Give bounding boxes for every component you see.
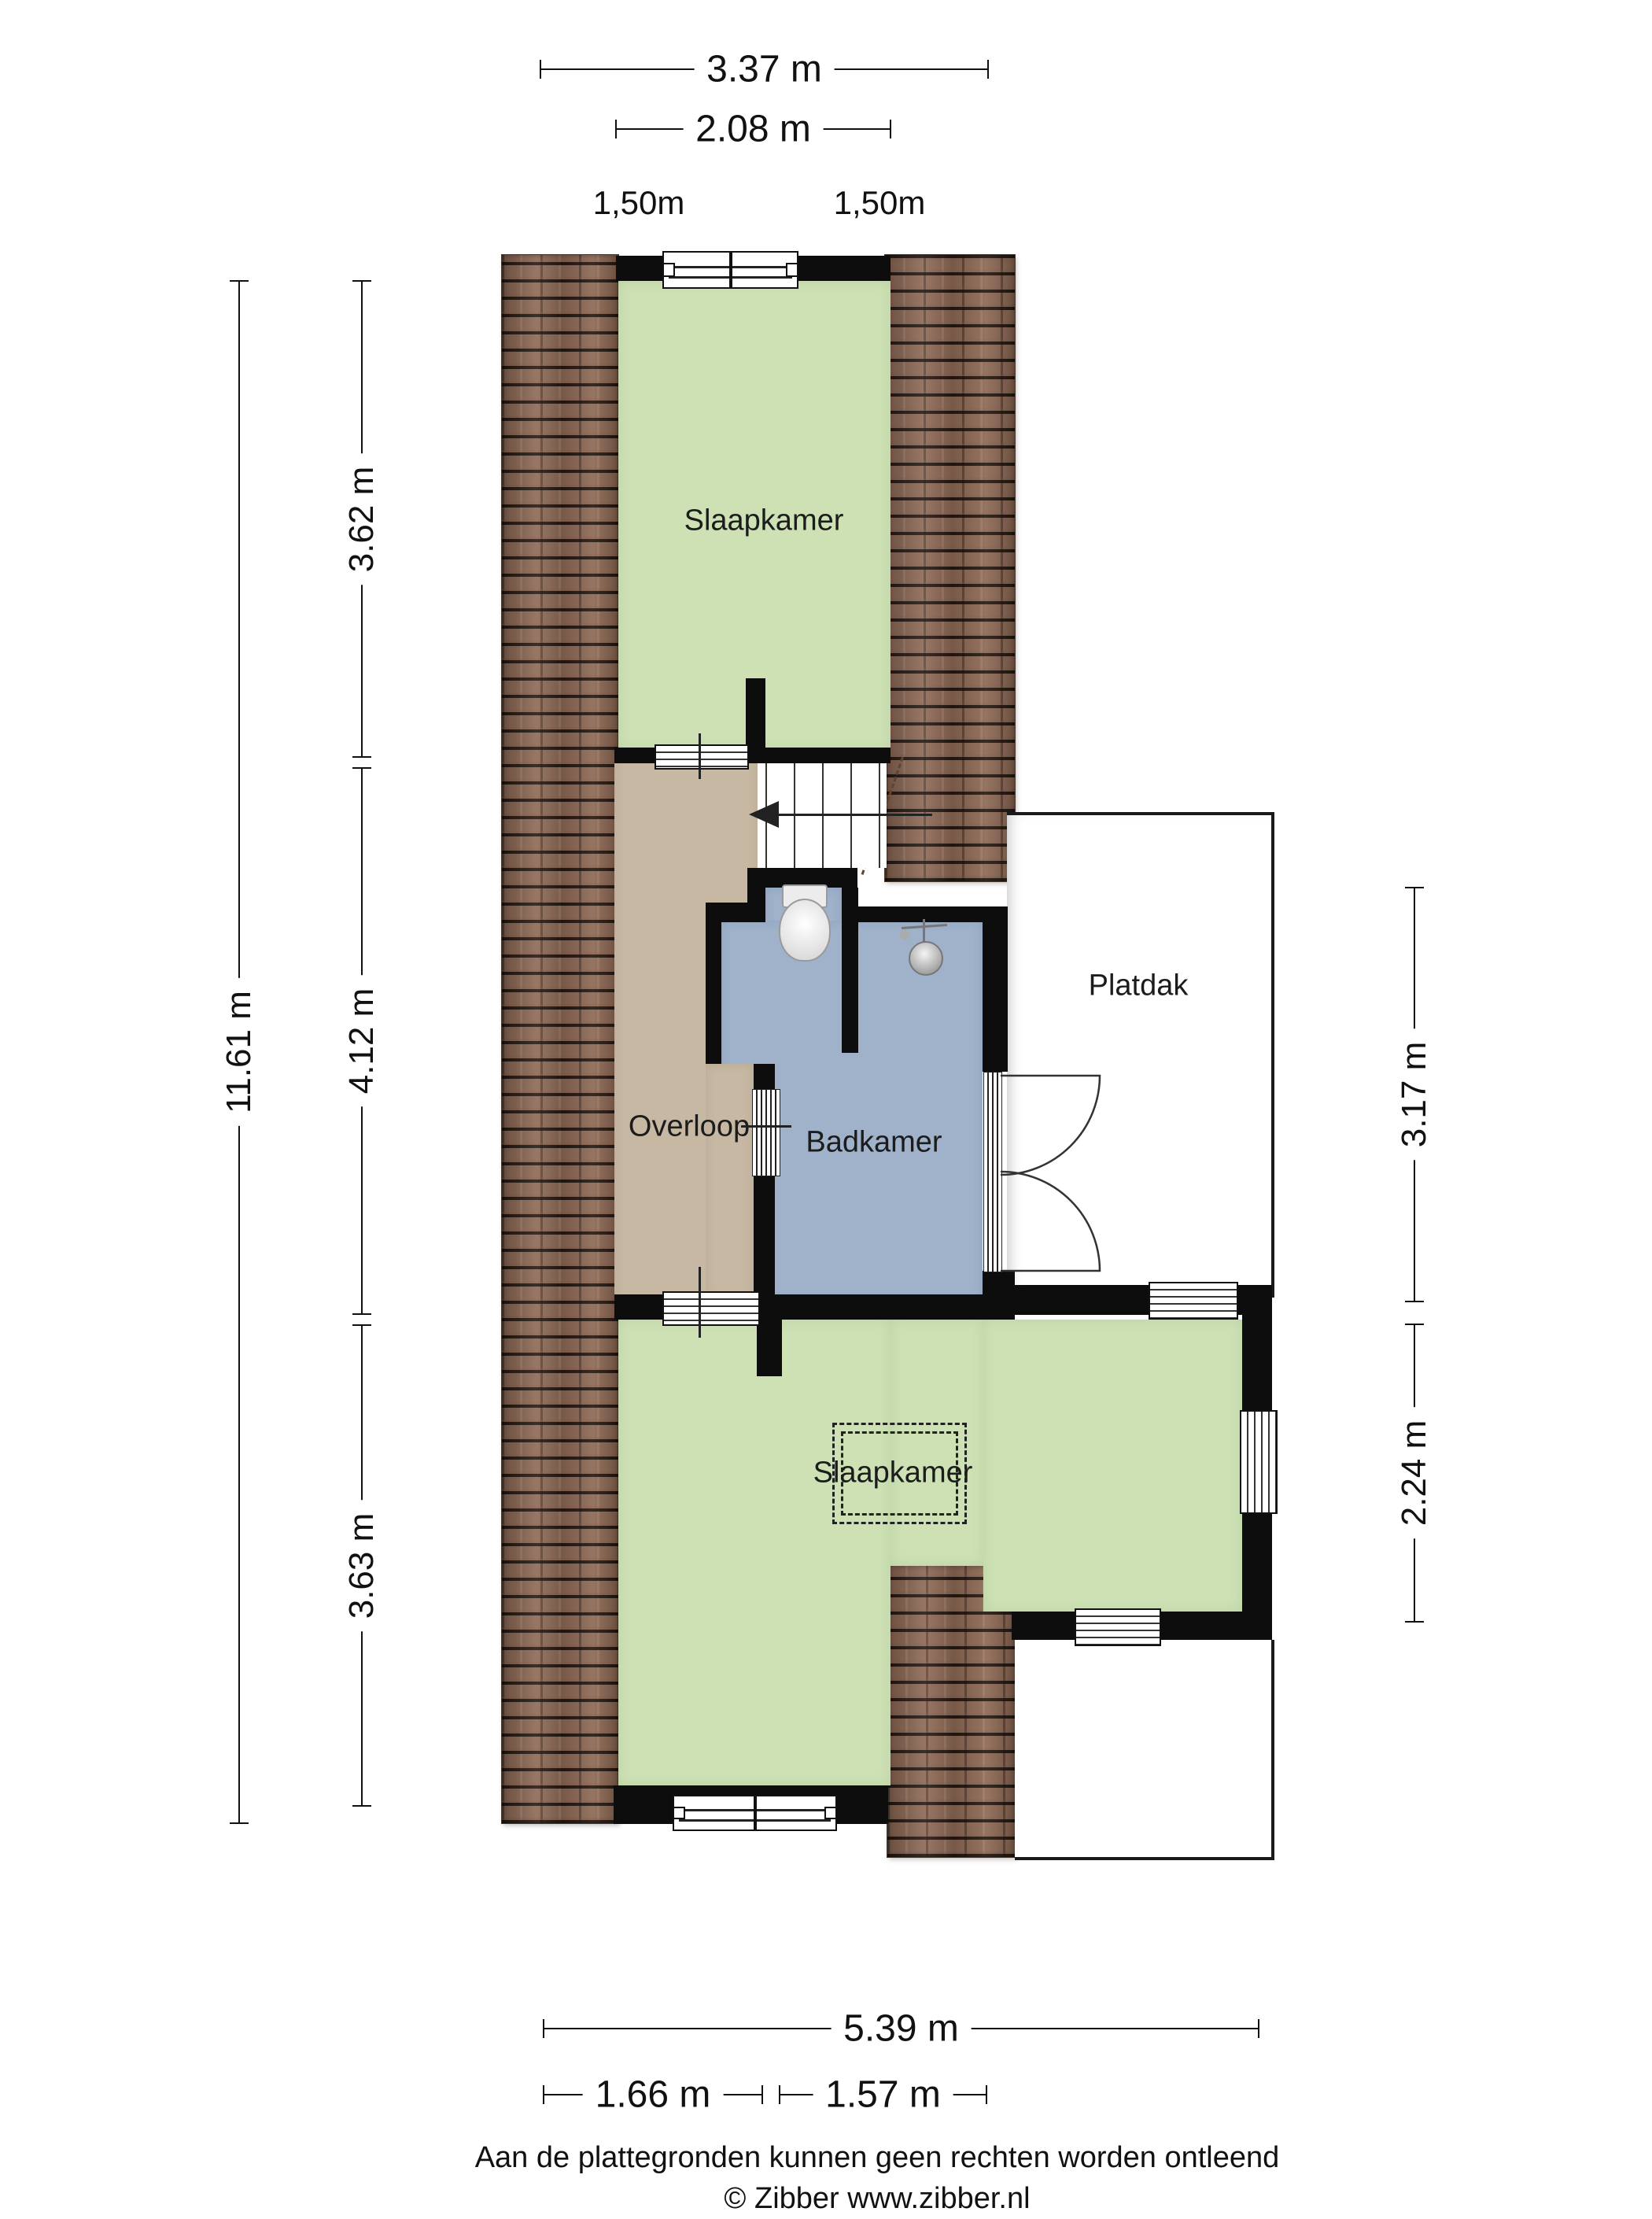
wall-toilet-nook-left bbox=[747, 868, 765, 922]
label-overloop-leader-line bbox=[741, 1125, 791, 1128]
dim-label-1-57: 1.57 m bbox=[813, 2073, 953, 2117]
dim-section-mid: 4.12 m bbox=[361, 767, 363, 1315]
label-badkamer: Badkamer bbox=[806, 1126, 942, 1160]
wall-tick-top bbox=[699, 733, 701, 779]
wall-badkamer-left bbox=[706, 922, 721, 1064]
label-slaapkamer-top: Slaapkamer bbox=[684, 504, 844, 538]
dim-section-bottom: 3.63 m bbox=[361, 1324, 363, 1807]
double-door-swing-platdak bbox=[1001, 1070, 1111, 1276]
window-overloop-top bbox=[655, 744, 749, 770]
wall-overloop-connector bbox=[706, 903, 747, 922]
shower-icon bbox=[897, 913, 952, 976]
dim-platdak-height: 3.17 m bbox=[1414, 887, 1415, 1302]
roof-band-right-top bbox=[885, 255, 1015, 881]
dim-bottom-right: 1.57 m bbox=[779, 2094, 987, 2095]
dim-label-3-62: 3.62 m bbox=[342, 453, 382, 585]
dim-total-width-bottom: 5.39 m bbox=[543, 2028, 1259, 2029]
window-mullion bbox=[729, 253, 732, 287]
dim-label-1-66: 1.66 m bbox=[583, 2073, 724, 2117]
window-frame-cap bbox=[786, 263, 798, 277]
dim-label-11-61: 11.61 m bbox=[219, 978, 259, 1126]
door-frame-platdak bbox=[983, 1072, 1002, 1272]
door-overloop-badkamer bbox=[752, 1089, 780, 1176]
stairs-direction-arrow-line bbox=[776, 814, 932, 816]
window-frame-cap bbox=[662, 263, 675, 277]
footer-disclaimer: Aan de plattegronden kunnen geen rechten… bbox=[0, 2137, 1652, 2219]
dim-label-2-24: 2.24 m bbox=[1395, 1408, 1434, 1539]
floorplan-page: { "plan": { "type": "floorplan", "floor"… bbox=[0, 0, 1652, 2203]
label-platdak: Platdak bbox=[1089, 969, 1189, 1003]
window-frame-cap bbox=[824, 1807, 837, 1820]
window-main-bottom bbox=[673, 1795, 837, 1831]
wall-overloop-badkamer-lower bbox=[754, 1175, 775, 1300]
room-slaapkamer-bottom-main bbox=[618, 1320, 891, 1785]
wall-overloop-badkamer-stub bbox=[754, 1064, 775, 1089]
dim-label-3-17: 3.17 m bbox=[1395, 1029, 1434, 1161]
dim-extension-height: 2.24 m bbox=[1414, 1324, 1415, 1623]
dim-label-5-39: 5.39 m bbox=[831, 2007, 972, 2051]
wall-tick-bottom bbox=[699, 1267, 701, 1338]
dim-total-height: 11.61 m bbox=[238, 280, 240, 1824]
window-extension-top bbox=[1149, 1282, 1238, 1320]
dim-room-width-top: 2.08 m bbox=[615, 128, 891, 130]
window-extension-bottom bbox=[1075, 1608, 1161, 1646]
dim-total-width-top: 3.37 m bbox=[540, 68, 989, 70]
room-overloop-lower-patch bbox=[706, 1064, 754, 1300]
lower-flat-roof-box bbox=[1015, 1640, 1274, 1860]
dim-label-1-50-left: 1,50m bbox=[593, 184, 685, 222]
stairs-direction-arrow-icon bbox=[749, 801, 779, 828]
toilet-icon bbox=[777, 883, 832, 962]
credit-text: © Zibber www.zibber.nl bbox=[102, 2178, 1652, 2219]
window-top-exterior bbox=[662, 251, 798, 289]
label-overloop: Overloop bbox=[629, 1110, 750, 1144]
window-extension-right bbox=[1240, 1410, 1278, 1514]
dim-label-2-08: 2.08 m bbox=[683, 108, 824, 151]
dim-section-top: 3.62 m bbox=[361, 280, 363, 758]
wall-stub-slaapkamer-bottom bbox=[757, 1320, 782, 1376]
dim-bottom-left: 1.66 m bbox=[543, 2094, 763, 2095]
wall-toilet-shower-divider bbox=[842, 888, 858, 1053]
wall-badkamer-right bbox=[983, 922, 1008, 1072]
room-slaapkamer-bottom-right bbox=[983, 1320, 1242, 1612]
label-slaapkamer-bottom: Slaapkamer bbox=[813, 1457, 973, 1490]
roof-band-left bbox=[502, 255, 618, 1823]
dim-label-3-37: 3.37 m bbox=[694, 48, 835, 91]
window-mullion bbox=[754, 1796, 757, 1829]
dim-label-4-12: 4.12 m bbox=[342, 976, 382, 1107]
dim-label-1-50-right: 1,50m bbox=[834, 184, 926, 222]
dim-label-3-63: 3.63 m bbox=[342, 1500, 382, 1631]
window-overloop-bottom bbox=[662, 1291, 760, 1326]
window-frame-cap bbox=[673, 1807, 685, 1820]
disclaimer-text: Aan de plattegronden kunnen geen rechten… bbox=[102, 2137, 1652, 2178]
